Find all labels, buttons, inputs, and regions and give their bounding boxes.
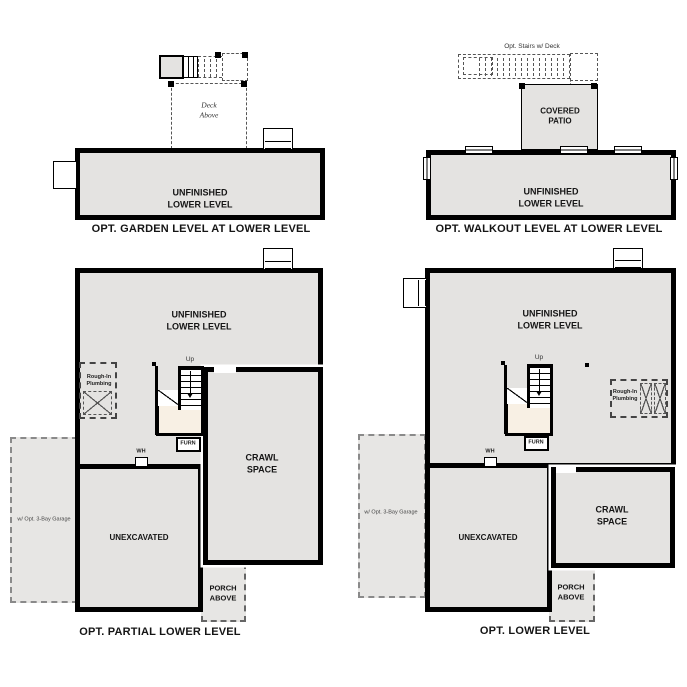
window-glazing	[265, 261, 291, 269]
water-heater-label: WH	[485, 448, 494, 455]
window-glazing	[615, 260, 641, 268]
post-dot	[585, 363, 589, 367]
room-label-unexcavated: UNEXCAVATED	[109, 533, 168, 543]
room-label-unfinished: UNFINISHED LOWER LEVEL	[168, 187, 233, 210]
room-label-crawl-space: CRAWL SPACE	[246, 452, 279, 475]
deck-post	[168, 81, 174, 87]
caption-garden-level: OPT. GARDEN LEVEL AT LOWER LEVEL	[92, 222, 311, 236]
stair-winders	[158, 390, 180, 406]
deck-above-label: Deck Above	[200, 100, 219, 120]
caption-walkout-level: OPT. WALKOUT LEVEL AT LOWER LEVEL	[435, 222, 662, 236]
deck-stair-landing	[159, 55, 184, 79]
room-label-unfinished: UNFINISHED LOWER LEVEL	[167, 309, 232, 332]
window-glazing	[418, 280, 426, 306]
crawl-space-opening	[214, 366, 236, 373]
floorplan-sheet: Deck Above UNFINISHED LOWER LEVEL OPT. G…	[0, 0, 687, 687]
porch-above-label: PORCH ABOVE	[209, 583, 236, 603]
porch-above-label: PORCH ABOVE	[557, 582, 584, 602]
window-glazing	[265, 141, 291, 149]
room-label-unexcavated: UNEXCAVATED	[458, 533, 517, 543]
up-label: Up	[535, 354, 543, 362]
covered-patio-label: COVERED PATIO	[540, 107, 580, 128]
window-symbol	[465, 146, 493, 154]
room-label-crawl-space: CRAWL SPACE	[596, 504, 629, 527]
window-symbol	[613, 248, 643, 269]
deck-post	[215, 52, 221, 58]
stair-winders	[507, 388, 529, 404]
deck-stair-upper-landing	[570, 53, 598, 81]
window-symbol	[53, 161, 77, 189]
deck-post	[242, 52, 248, 58]
water-heater-label: WH	[136, 448, 145, 455]
stairs-symbol	[178, 366, 204, 410]
plumbing-fixture-symbol	[83, 391, 112, 415]
stair-direction-arrow	[539, 369, 540, 392]
caption-lower-level: OPT. LOWER LEVEL	[480, 624, 590, 638]
garage-option-label: w/ Opt. 3-Bay Garage	[17, 516, 70, 523]
stair-direction-arrow	[190, 371, 191, 394]
deck-stairs-symbol	[182, 56, 198, 78]
garage-option-label: w/ Opt. 3-Bay Garage	[364, 509, 417, 516]
patio-post	[519, 83, 525, 89]
water-heater-box	[135, 457, 148, 467]
deck-stair-landing	[463, 57, 493, 75]
opt-stairs-label: Opt. Stairs w/ Deck	[504, 43, 560, 51]
window-symbol	[263, 248, 293, 270]
plumbing-fixture-symbol	[640, 383, 652, 414]
deck-stairs-dashed-symbol	[198, 56, 222, 78]
furnace-label: FURN	[180, 440, 195, 447]
patio-post	[591, 83, 597, 89]
room-label-unfinished: UNFINISHED LOWER LEVEL	[519, 186, 584, 209]
deck-post	[241, 81, 247, 87]
plumbing-fixture-symbol	[654, 383, 666, 414]
window-symbol	[423, 157, 431, 180]
stairs-symbol	[527, 364, 553, 408]
rough-in-label: Rough-In Plumbing	[86, 374, 111, 388]
window-symbol	[670, 157, 678, 180]
water-heater-box	[484, 457, 497, 467]
deck-stairs-area	[458, 54, 570, 79]
stair-arrow-head	[536, 391, 542, 396]
window-symbol	[263, 128, 293, 150]
crawl-space-opening	[556, 466, 576, 473]
room-label-unfinished: UNFINISHED LOWER LEVEL	[518, 308, 583, 331]
furnace-label: FURN	[528, 439, 543, 446]
stair-arrow-head	[187, 393, 193, 398]
window-symbol	[560, 146, 588, 154]
window-symbol	[614, 146, 642, 154]
caption-partial-lower-level: OPT. PARTIAL LOWER LEVEL	[79, 625, 240, 639]
rough-in-label: Rough-In Plumbing	[612, 389, 637, 403]
window-symbol	[403, 278, 427, 308]
rough-in-plumbing-area	[79, 362, 117, 419]
up-label: Up	[186, 356, 194, 364]
